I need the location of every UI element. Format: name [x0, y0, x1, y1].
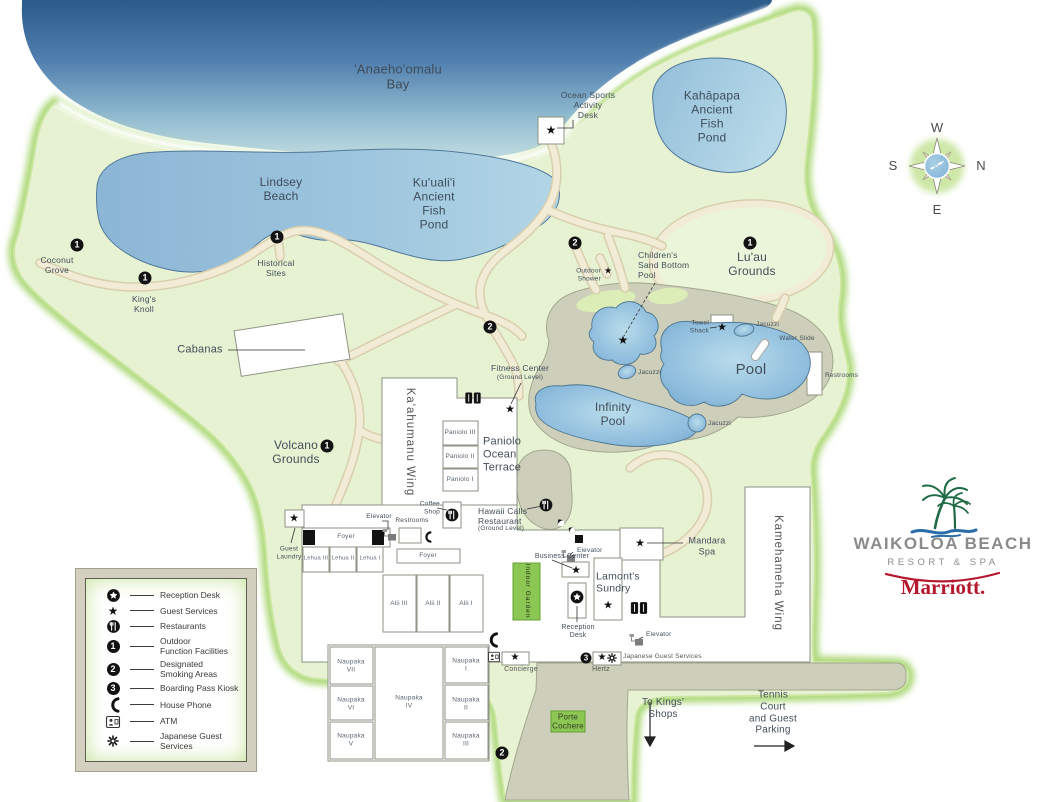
resort-map-page: W N E S 'Anaeho'omalu Bay Ocean Sport	[0, 0, 1045, 802]
guest-services-icon: ★	[604, 268, 612, 277]
legend-dash	[130, 595, 154, 596]
label-bay: 'Anaeho'omalu Bay	[354, 62, 442, 93]
label-coffee-shop: Coffee Shop	[420, 500, 440, 515]
guest-services-icon: ★	[505, 404, 515, 415]
label-restrooms-west: Restrooms	[395, 517, 428, 525]
label-kuualii-pond: Ku'uali'i Ancient Fish Pond	[413, 176, 455, 233]
legend: Reception Desk ★ Guest Services Restaura…	[75, 568, 257, 772]
legend-row-atm: ATM	[102, 715, 240, 729]
stairs-icon	[575, 535, 583, 543]
jacuzzi-lower	[688, 414, 706, 432]
boarding-pass-kiosk-marker: 3	[581, 653, 592, 664]
label-kamehameha-wing: Kamehameha Wing	[770, 515, 784, 631]
smoking-area-marker: 2	[569, 237, 582, 250]
label-childrens-pool: Children's Sand Bottom Pool	[638, 250, 689, 280]
guest-services-icon: ★	[102, 605, 124, 617]
label-paniolo-iii: Paniolo III	[444, 429, 475, 437]
label-luau-grounds: Lu'au Grounds	[728, 250, 775, 278]
restaurant-icon	[446, 509, 459, 522]
logo-resort-name: WAIKOLOA BEACH	[840, 534, 1045, 554]
legend-row-boarding-pass: 3 Boarding Pass Kiosk	[102, 682, 240, 695]
legend-row-japanese-guest-services: Japanese Guest Services	[102, 731, 240, 752]
compass-n: N	[976, 158, 985, 173]
legend-panel: Reception Desk ★ Guest Services Restaura…	[85, 578, 247, 762]
label-paniolo-i: Paniolo I	[446, 476, 473, 484]
label-naupaka-vi: Naupaka VI	[337, 696, 364, 711]
label-cabanas: Cabanas	[177, 344, 222, 357]
label-hertz: Hertz	[592, 666, 610, 674]
outdoor-function-marker: 1	[71, 239, 84, 252]
label-lehua-ii: Lehua II	[332, 556, 355, 563]
label-lamonts-sundry: Lamont's Sundry	[596, 571, 640, 596]
tennis-arrow	[754, 741, 794, 751]
label-naupaka-iv: Naupaka IV	[395, 694, 422, 709]
resort-logo: WAIKOLOA BEACH RESORT & SPA Marriott.	[840, 478, 1045, 618]
japanese-guest-services-icon	[608, 654, 617, 663]
label-alii-ii: Alii II	[425, 600, 441, 608]
legend-label: ATM	[160, 716, 177, 727]
label-infinity-pool: Infinity Pool	[595, 400, 631, 428]
legend-dash	[130, 721, 154, 722]
smoking-area-marker: 2	[484, 321, 497, 334]
label-jacuzzi-upper: Jacuzzi	[756, 321, 779, 329]
atm-icon	[488, 652, 499, 661]
label-pool-restrooms: Restrooms	[825, 372, 858, 380]
smoking-area-marker: 2	[496, 747, 509, 760]
elevator-bank-icon	[372, 530, 384, 545]
legend-row-guest-services: ★ Guest Services	[102, 605, 240, 617]
label-water-slide: Water Slide	[779, 335, 815, 343]
label-alii-iii: Alii III	[390, 600, 408, 608]
label-reception-desk: Reception Desk	[561, 624, 594, 641]
label-lindsey-beach: Lindsey Beach	[260, 175, 303, 203]
label-naupaka-i: Naupaka I	[452, 657, 479, 672]
legend-dash	[130, 646, 154, 647]
label-jacuzzi-lower: Jacuzzi	[708, 420, 731, 428]
label-tennis-parking: Tennis Court and Guest Parking	[749, 689, 797, 736]
legend-label: Reception Desk	[160, 590, 220, 601]
legend-dash	[130, 626, 154, 627]
legend-row-smoking: 2 Designated Smoking Areas	[102, 659, 240, 680]
label-elevator-business: Elevator	[577, 547, 602, 555]
legend-row-outdoor-function: 1 Outdoor Function Facilities	[102, 636, 240, 657]
label-paniolo-terrace: Paniolo Ocean Terrace	[483, 436, 521, 475]
label-kings-knoll: King's Knoll	[132, 294, 156, 314]
label-pool: Pool	[736, 361, 767, 379]
label-naupaka-v: Naupaka V	[337, 732, 364, 747]
boarding-pass-kiosk-icon: 3	[102, 682, 124, 695]
guest-services-icon: ★	[618, 334, 629, 346]
outdoor-function-marker: 1	[139, 272, 152, 285]
label-indoor-garden: Indoor Garden	[523, 564, 531, 619]
label-naupaka-iii: Naupaka III	[452, 732, 479, 747]
guest-services-icon: ★	[603, 600, 613, 611]
legend-label: Designated Smoking Areas	[160, 659, 217, 680]
legend-dash	[130, 741, 154, 742]
reception-desk-icon	[102, 588, 124, 603]
logo-tagline: RESORT & SPA	[840, 557, 1045, 568]
label-volcano-grounds: Volcano Grounds	[272, 438, 319, 466]
atm-icon	[102, 715, 124, 729]
label-lehua-iii: Lehua III	[304, 556, 328, 563]
legend-label: Restaurants	[160, 621, 206, 632]
label-foyer-west: Foyer	[337, 533, 355, 541]
guest-services-icon: ★	[717, 322, 727, 333]
label-kahapapa-pond: Kahāpapa Ancient Fish Pond	[684, 89, 740, 146]
restaurant-icon	[540, 499, 553, 512]
label-jacuzzi-middle: Jacuzzi	[638, 369, 661, 377]
legend-label: Japanese Guest Services	[160, 731, 222, 752]
legend-dash	[130, 669, 154, 670]
label-porte-cochere: Porte Cochere	[552, 713, 584, 732]
label-guest-laundry: Guest Laundry	[277, 545, 302, 560]
restrooms-west-room	[399, 528, 421, 543]
label-coconut-grove: Coconut Grove	[40, 255, 73, 275]
guest-services-icon: ★	[571, 565, 581, 576]
outdoor-function-marker: 1	[321, 440, 334, 453]
legend-label: Guest Services	[160, 606, 218, 617]
label-concierge: Concierge	[504, 666, 538, 674]
guest-services-icon: ★	[289, 513, 299, 524]
restaurants-icon	[102, 619, 124, 634]
label-outdoor-shower: Outdoor Shower	[576, 267, 601, 282]
compass-rose: W N E S	[889, 120, 986, 217]
outdoor-function-facilities-icon: 1	[102, 640, 124, 653]
label-japanese-guest-services: Japanese Guest Services	[623, 653, 702, 661]
label-mandara-spa: Mandara Spa	[689, 535, 726, 556]
guest-services-icon: ★	[511, 653, 520, 663]
legend-row-restaurants: Restaurants	[102, 619, 240, 634]
guest-services-icon: ★	[598, 653, 607, 663]
label-paniolo-ii: Paniolo II	[445, 453, 474, 461]
stairs-icon	[557, 519, 564, 526]
compass-s: S	[889, 158, 898, 173]
house-phone-icon	[102, 697, 124, 713]
label-lehua-i: Lehua I	[360, 556, 381, 563]
reception-desk-icon	[571, 591, 584, 604]
legend-dash	[130, 688, 154, 689]
label-naupaka-vii: Naupaka VII	[337, 658, 364, 673]
designated-smoking-areas-icon: 2	[102, 663, 124, 676]
elevator-bank-icon	[303, 530, 315, 545]
outdoor-function-marker: 1	[271, 231, 284, 244]
label-alii-i: Alii I	[459, 600, 472, 608]
label-elevator-west: Elevator	[366, 513, 391, 521]
japanese-guest-services-icon	[102, 734, 124, 748]
guest-services-icon: ★	[635, 538, 645, 549]
legend-row-reception: Reception Desk	[102, 588, 240, 603]
outdoor-function-marker: 1	[744, 237, 757, 250]
legend-dash	[130, 610, 154, 611]
legend-dash	[130, 704, 154, 705]
label-to-kings-shops: To Kings' Shops	[642, 697, 684, 721]
label-towel-shack: Towel Shack	[690, 319, 709, 334]
legend-label: Boarding Pass Kiosk	[160, 683, 238, 694]
label-fitness-ground-level: (Ground Level)	[497, 374, 543, 382]
label-kaahumanu-wing: Ka'ahumanu Wing	[402, 388, 416, 497]
legend-label: House Phone	[160, 700, 212, 711]
label-naupaka-ii: Naupaka II	[452, 696, 479, 711]
label-foyer-center: Foyer	[419, 552, 437, 560]
guest-services-icon: ★	[546, 124, 557, 136]
label-hawaii-ground-level: (Ground Level)	[478, 525, 524, 533]
marriott-wordmark: Marriott.	[840, 575, 1045, 600]
compass-w: W	[931, 120, 944, 135]
label-fitness-center: Fitness Center	[491, 363, 549, 373]
label-elevator-southeast: Elevator	[646, 631, 671, 639]
legend-label: Outdoor Function Facilities	[160, 636, 228, 657]
label-historical-sites: Historical Sites	[258, 258, 295, 278]
label-hawaii-calls: Hawaii Calls Restaurant	[478, 506, 527, 526]
compass-e: E	[933, 202, 942, 217]
label-ocean-sports-desk: Ocean Sports Activity Desk	[561, 90, 615, 120]
legend-row-house-phone: House Phone	[102, 697, 240, 713]
